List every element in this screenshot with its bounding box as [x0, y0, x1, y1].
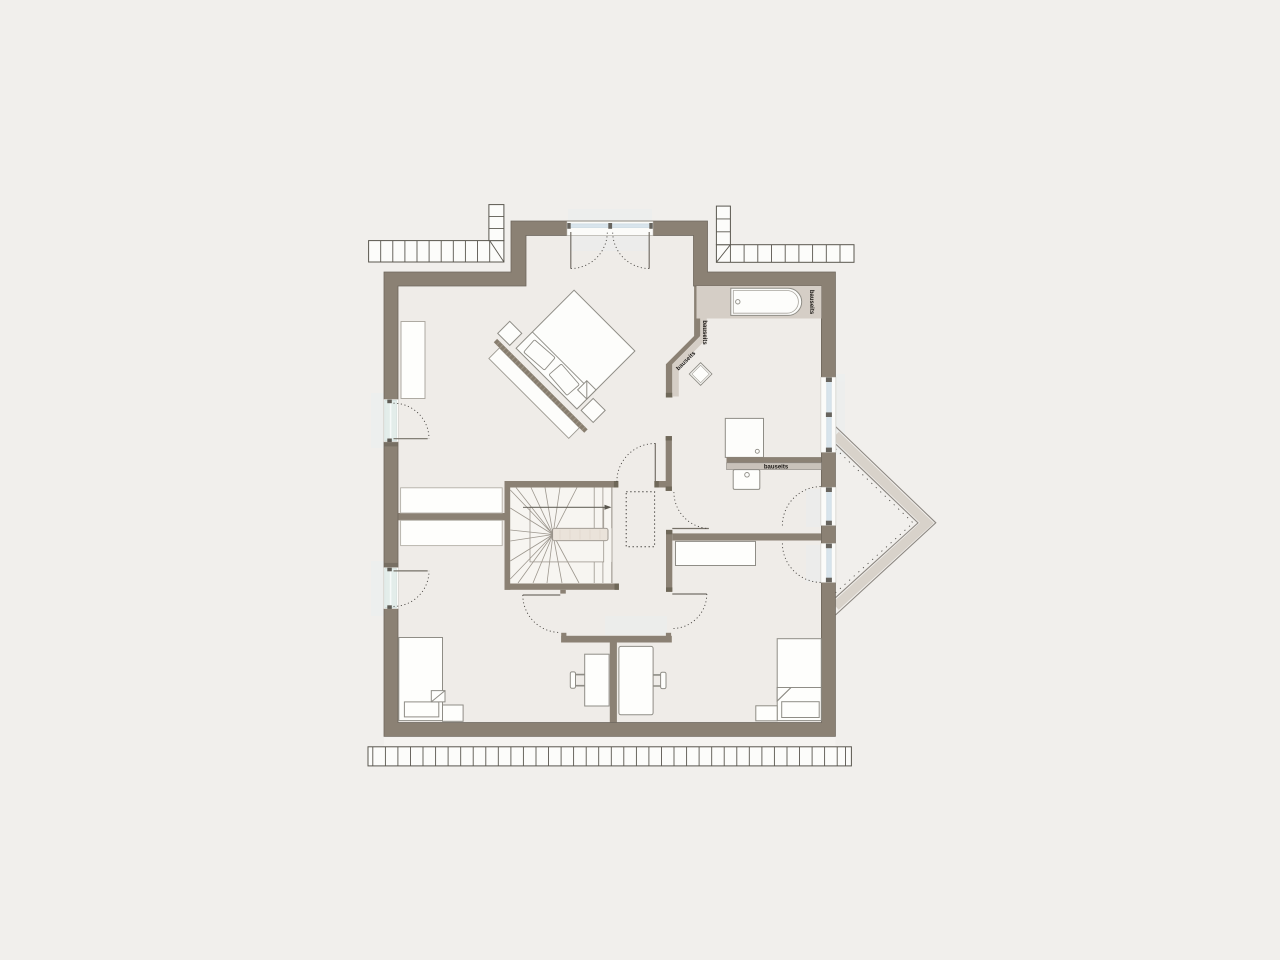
svg-text:bauseits: bauseits	[764, 464, 789, 470]
svg-text:bauseits: bauseits	[808, 290, 814, 315]
svg-text:bauseits: bauseits	[701, 320, 707, 345]
